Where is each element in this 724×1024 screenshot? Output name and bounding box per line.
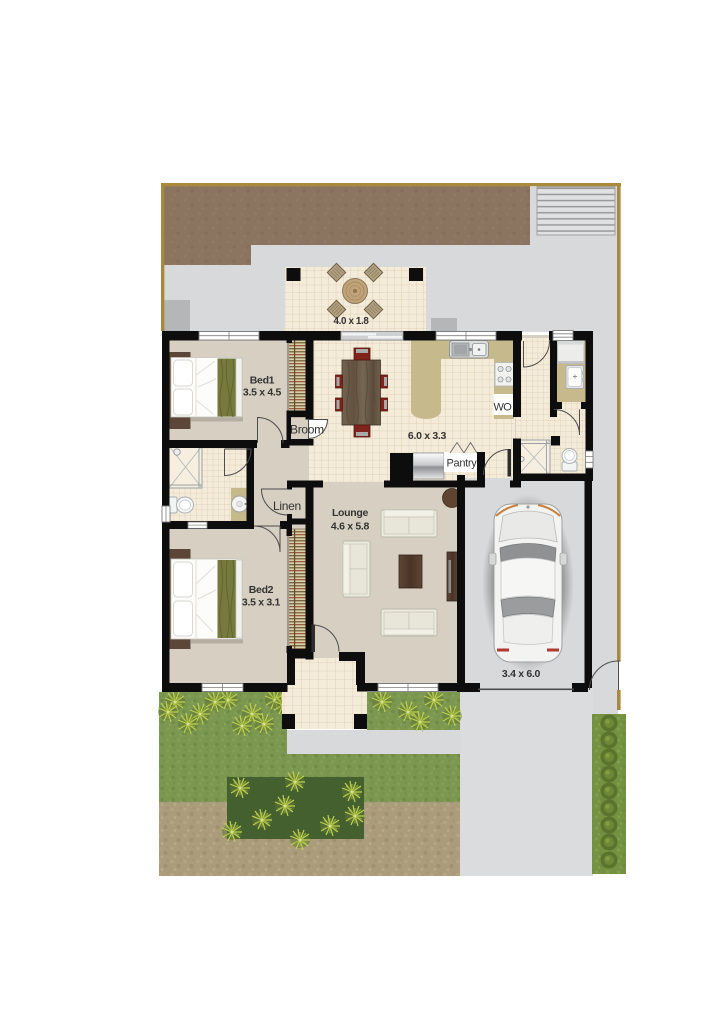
svg-text:3.5 x 4.5: 3.5 x 4.5: [243, 387, 282, 399]
svg-text:WO: WO: [494, 402, 513, 414]
svg-text:4.6 x 5.8: 4.6 x 5.8: [331, 521, 370, 533]
svg-text:Pantry: Pantry: [447, 458, 478, 470]
svg-text:6.0 x 3.3: 6.0 x 3.3: [408, 430, 447, 442]
svg-text:3.4 x 6.0: 3.4 x 6.0: [502, 668, 541, 680]
svg-text:3.5 x 3.1: 3.5 x 3.1: [242, 597, 281, 609]
svg-text:Linen: Linen: [273, 499, 301, 513]
svg-text:Bed1: Bed1: [250, 375, 275, 387]
svg-text:Bed2: Bed2: [249, 584, 274, 596]
svg-text:Lounge: Lounge: [332, 507, 369, 519]
svg-text:Broom: Broom: [290, 423, 324, 437]
svg-text:4.0 x 1.8: 4.0 x 1.8: [334, 316, 370, 327]
